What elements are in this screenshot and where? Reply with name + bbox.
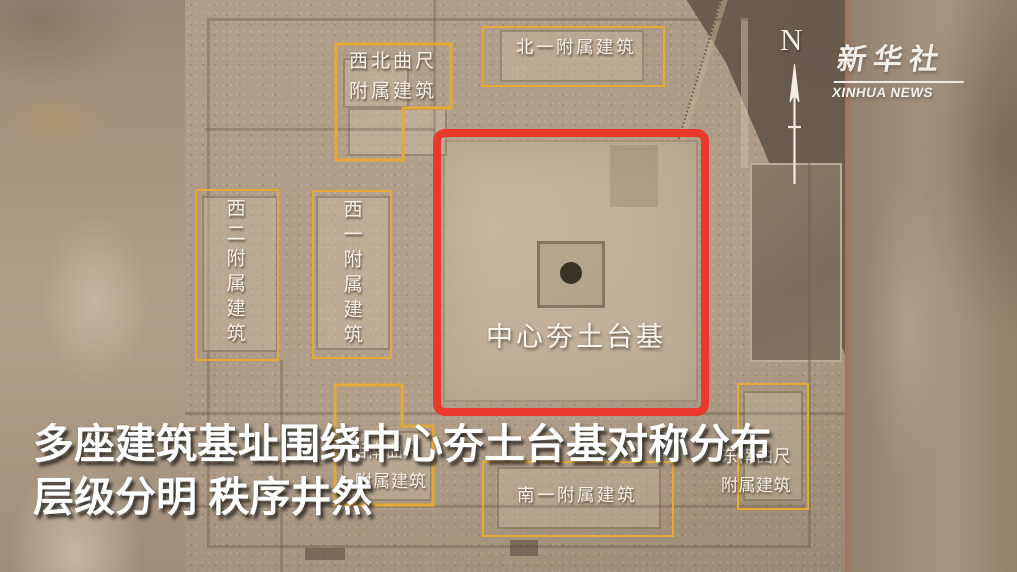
label-south1: 南一附属建筑 — [517, 484, 637, 508]
label-north1: 北一附属建筑 — [516, 36, 636, 60]
video-frame: 西北曲尺 附属建筑 北一附属建筑 西二附属建筑 西一附属建筑 中心夯土台基 西南… — [0, 0, 1017, 572]
xinhua-logo-cn: 新华社 — [834, 36, 971, 83]
compass-arrow-icon — [786, 62, 803, 186]
xinhua-logo-en: XINHUA NEWS — [831, 85, 963, 100]
label-northwest-line1: 西北曲尺 — [349, 49, 437, 75]
label-west1: 西一附属建筑 — [338, 199, 364, 351]
compass-north-label: N — [780, 22, 802, 58]
xinhua-logo: 新华社 XINHUA NEWS — [831, 36, 971, 100]
caption-line1: 多座建筑基址围绕中心夯土台基对称分布 — [33, 424, 771, 465]
box-central-platform — [433, 129, 709, 416]
label-west2: 西二附属建筑 — [221, 198, 247, 350]
caption-line2: 层级分明 秩序井然 — [33, 477, 372, 518]
label-central-platform: 中心夯土台基 — [486, 315, 666, 354]
label-southeast-line2: 附属建筑 — [721, 475, 791, 498]
label-northwest-line2: 附属建筑 — [349, 79, 437, 105]
